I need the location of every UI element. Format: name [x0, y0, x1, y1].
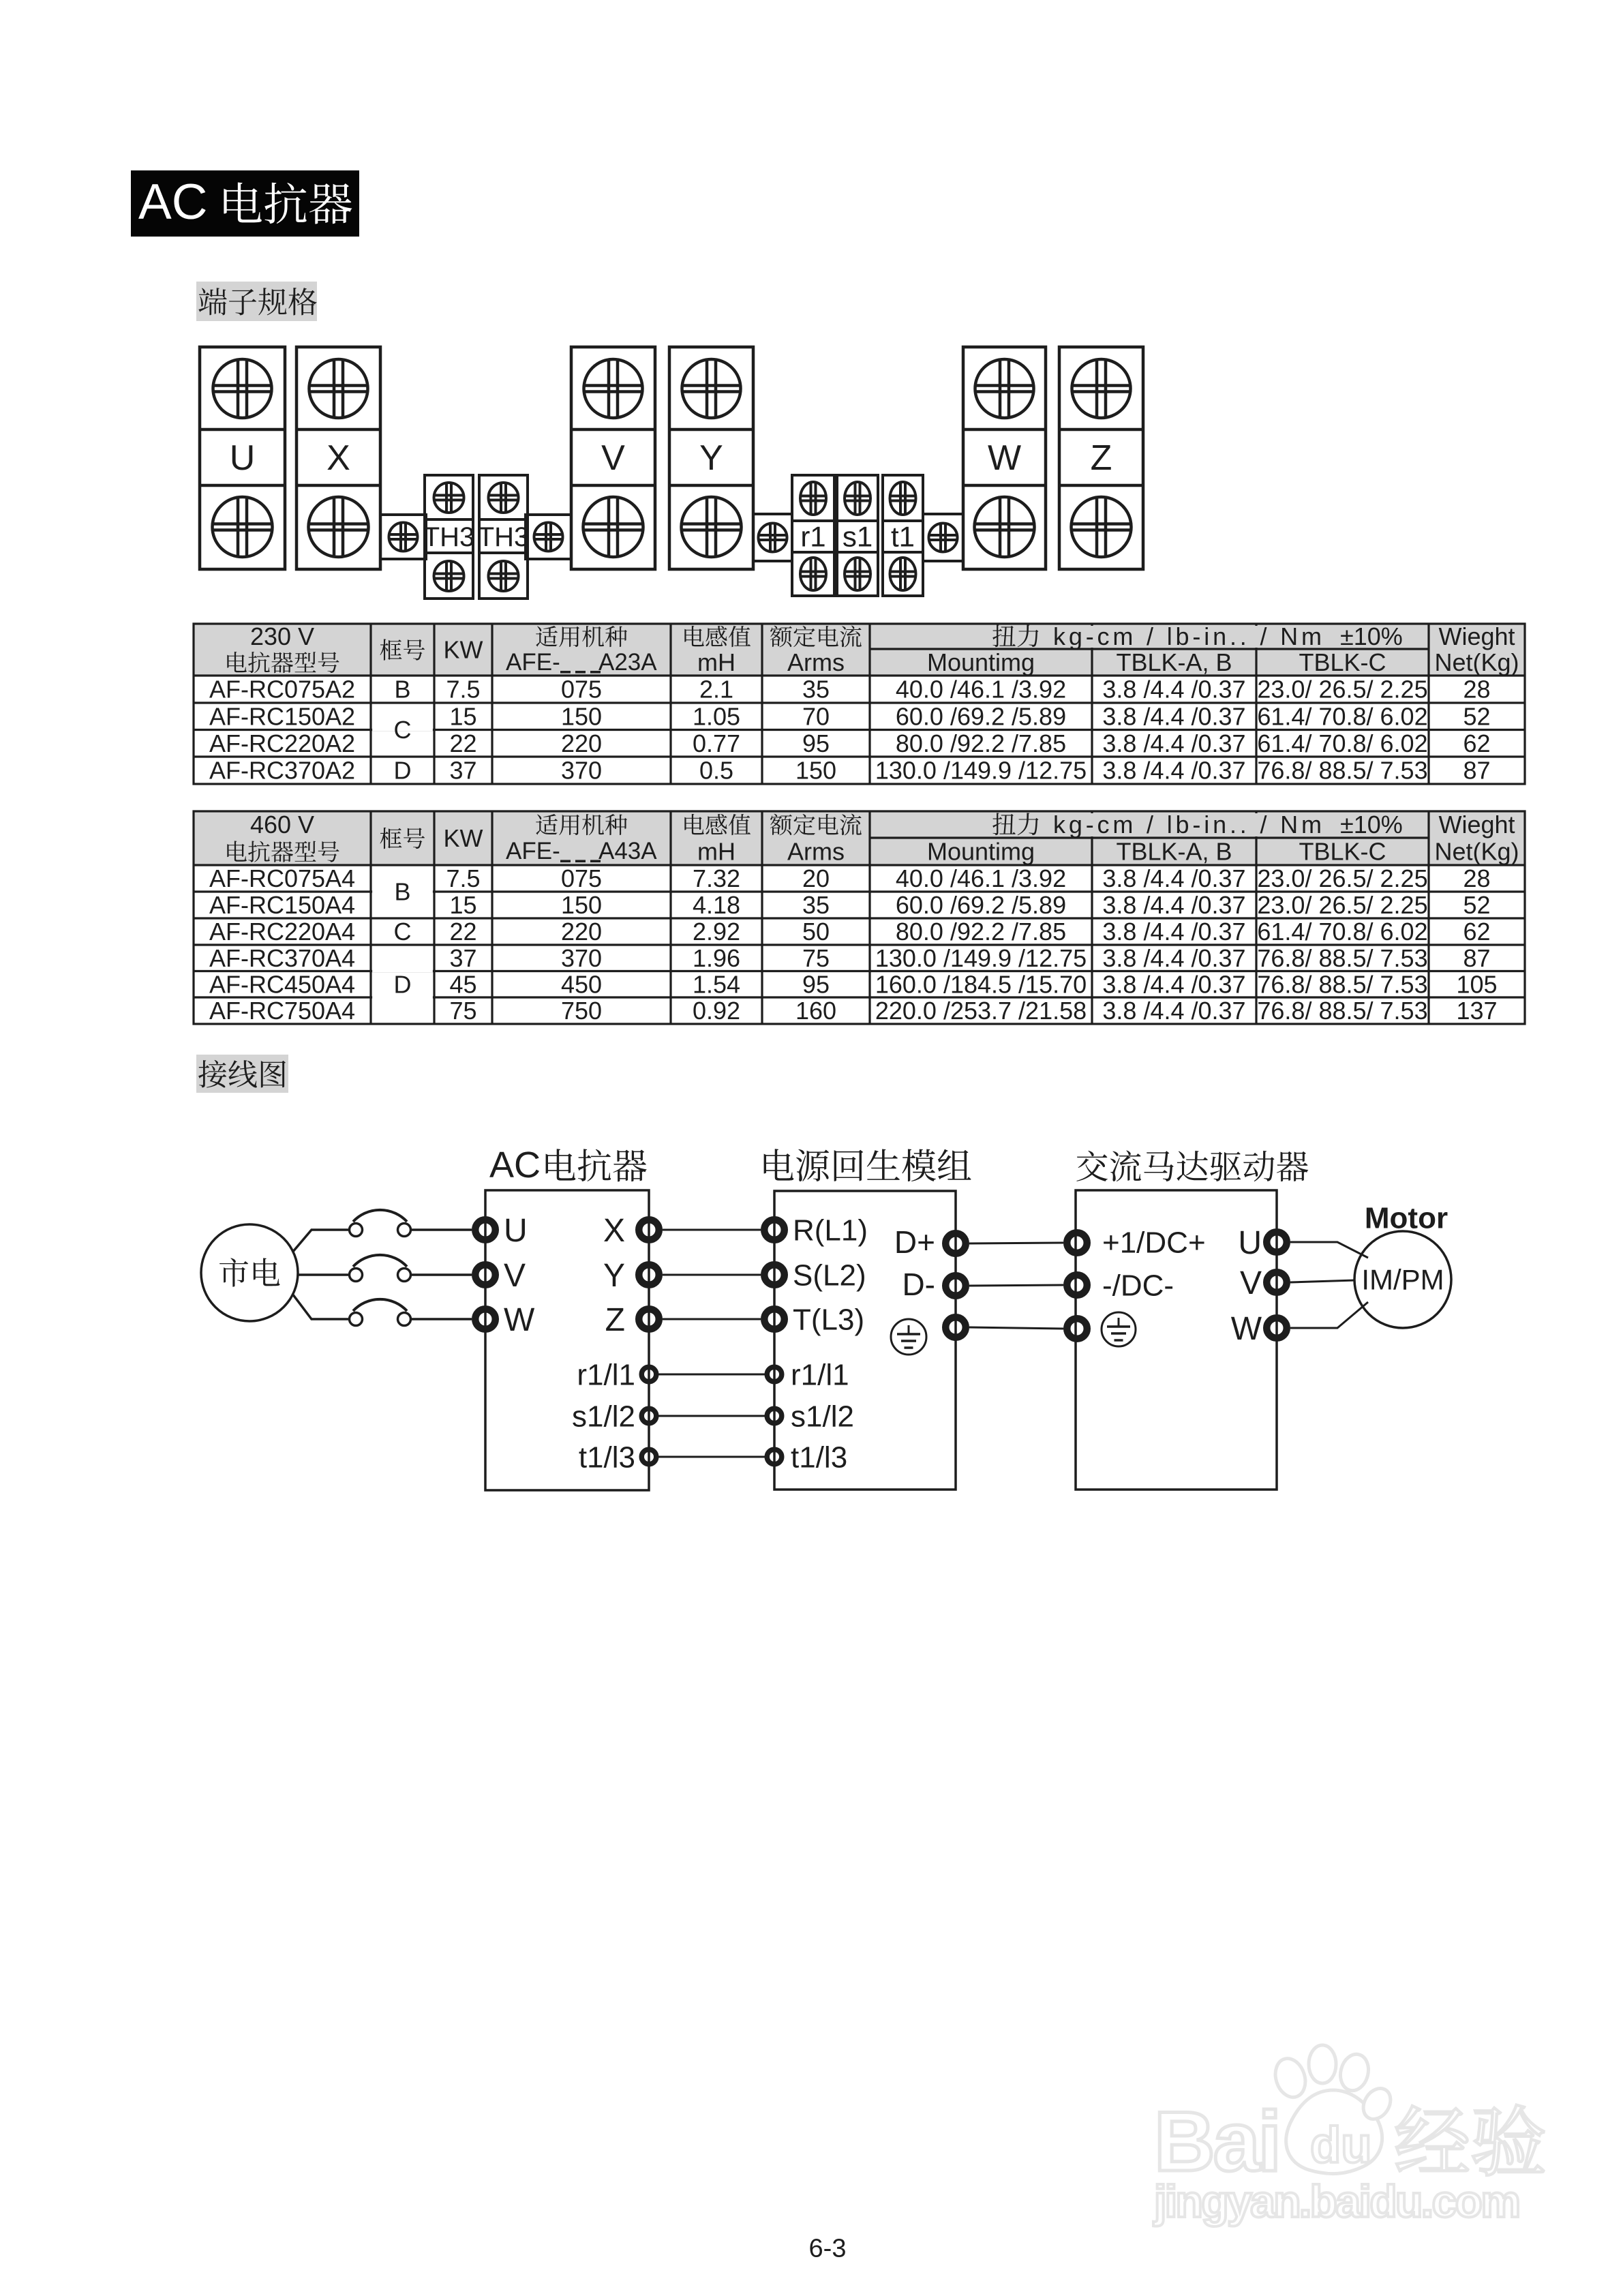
svg-text:160.0 /184.5 /15.70: 160.0 /184.5 /15.70	[875, 970, 1087, 998]
svg-text:76.8/ 88.5/ 7.53: 76.8/ 88.5/ 7.53	[1257, 944, 1427, 972]
svg-text:15: 15	[449, 702, 476, 730]
svg-text:52: 52	[1463, 891, 1490, 919]
svg-text:kg-cm / lb-in.. / Nm: kg-cm / lb-in.. / Nm	[1053, 811, 1322, 839]
svg-text:AF-RC750A4: AF-RC750A4	[209, 997, 355, 1025]
svg-text:60.0 /69.2 /5.89: 60.0 /69.2 /5.89	[896, 891, 1066, 919]
svg-text:4.18: 4.18	[693, 891, 740, 919]
svg-text:130.0 /149.9 /12.75: 130.0 /149.9 /12.75	[875, 944, 1087, 972]
svg-text:AF-RC370A4: AF-RC370A4	[209, 944, 355, 972]
svg-text:AF-RC075A4: AF-RC075A4	[209, 864, 355, 892]
svg-text:Mountimg: Mountimg	[927, 838, 1035, 866]
svg-text:s1/l2: s1/l2	[572, 1400, 635, 1433]
svg-text:15: 15	[449, 891, 476, 919]
svg-text:+1/DC+: +1/DC+	[1102, 1226, 1206, 1259]
svg-text:W: W	[988, 438, 1021, 478]
svg-text:28: 28	[1463, 864, 1490, 892]
svg-text:AF-RC150A4: AF-RC150A4	[209, 891, 355, 919]
svg-text:1.05: 1.05	[693, 702, 740, 730]
svg-text:IM/PM: IM/PM	[1361, 1264, 1444, 1296]
svg-text:S(L2): S(L2)	[793, 1258, 866, 1292]
svg-text:Mountimg: Mountimg	[927, 648, 1035, 676]
svg-text:150: 150	[795, 757, 836, 785]
svg-text:105: 105	[1456, 970, 1497, 998]
svg-text:V: V	[1240, 1265, 1262, 1301]
svg-text:95: 95	[802, 970, 830, 998]
svg-text:20: 20	[802, 864, 830, 892]
svg-text:230 V: 230 V	[250, 622, 314, 650]
svg-text:75: 75	[449, 997, 476, 1025]
svg-text:Arms: Arms	[787, 648, 845, 676]
svg-text:220: 220	[561, 918, 602, 946]
svg-text:r1/l1: r1/l1	[791, 1358, 849, 1391]
svg-text:7.5: 7.5	[446, 864, 480, 892]
svg-text:50: 50	[802, 918, 830, 946]
svg-text:75: 75	[802, 944, 830, 972]
svg-text:220.0 /253.7 /21.58: 220.0 /253.7 /21.58	[875, 997, 1087, 1025]
svg-text:40.0 /46.1 /3.92: 40.0 /46.1 /3.92	[896, 864, 1066, 892]
svg-text:370: 370	[561, 757, 602, 785]
svg-text:23.0/ 26.5/ 2.25: 23.0/ 26.5/ 2.25	[1257, 891, 1427, 919]
svg-text:AF-RC450A4: AF-RC450A4	[209, 970, 355, 998]
svg-text:AF-RC370A2: AF-RC370A2	[209, 757, 355, 785]
svg-text:130.0 /149.9 /12.75: 130.0 /149.9 /12.75	[875, 757, 1087, 785]
svg-text:95: 95	[802, 729, 830, 757]
svg-text:Arms: Arms	[787, 838, 845, 866]
svg-text:A43A: A43A	[598, 838, 657, 864]
svg-text:075: 075	[561, 864, 602, 892]
svg-text:D: D	[394, 971, 412, 999]
svg-text:70: 70	[802, 702, 830, 730]
svg-text:62: 62	[1463, 918, 1490, 946]
svg-text:Net(Kg): Net(Kg)	[1434, 838, 1519, 866]
svg-text:t1/l3: t1/l3	[579, 1440, 635, 1474]
svg-text:R(L1): R(L1)	[793, 1213, 868, 1247]
svg-text:±10%: ±10%	[1340, 622, 1403, 650]
svg-text:76.8/ 88.5/ 7.53: 76.8/ 88.5/ 7.53	[1257, 970, 1427, 998]
svg-text:Y: Y	[603, 1258, 625, 1294]
svg-text:TBLK-C: TBLK-C	[1299, 648, 1386, 676]
svg-text:U: U	[230, 438, 256, 478]
svg-text:AFE-: AFE-	[506, 838, 560, 864]
svg-text:t1/l3: t1/l3	[791, 1440, 847, 1474]
svg-text:X: X	[327, 438, 350, 478]
svg-text:7.5: 7.5	[446, 676, 480, 704]
svg-text:3.8 /4.4 /0.37: 3.8 /4.4 /0.37	[1102, 891, 1245, 919]
svg-text:TH3: TH3	[423, 522, 475, 552]
svg-text:61.4/ 70.8/ 6.02: 61.4/ 70.8/ 6.02	[1257, 702, 1427, 730]
svg-text:D-: D-	[902, 1267, 935, 1302]
svg-text:1.96: 1.96	[693, 944, 740, 972]
svg-text:3.8 /4.4 /0.37: 3.8 /4.4 /0.37	[1102, 970, 1245, 998]
svg-text:76.8/ 88.5/ 7.53: 76.8/ 88.5/ 7.53	[1257, 757, 1427, 785]
svg-text:075: 075	[561, 676, 602, 704]
svg-text:0.77: 0.77	[693, 729, 740, 757]
svg-text:23.0/ 26.5/ 2.25: 23.0/ 26.5/ 2.25	[1257, 864, 1427, 892]
svg-text:750: 750	[561, 997, 602, 1025]
svg-text:220: 220	[561, 729, 602, 757]
svg-text:V: V	[504, 1258, 526, 1294]
svg-text:45: 45	[449, 970, 476, 998]
svg-text:3.8 /4.4 /0.37: 3.8 /4.4 /0.37	[1102, 676, 1245, 704]
svg-text:W: W	[504, 1302, 535, 1338]
svg-text:du: du	[1310, 2117, 1371, 2173]
svg-text:23.0/ 26.5/ 2.25: 23.0/ 26.5/ 2.25	[1257, 676, 1427, 704]
svg-text:3.8 /4.4 /0.37: 3.8 /4.4 /0.37	[1102, 918, 1245, 946]
svg-text:U: U	[1238, 1225, 1262, 1261]
svg-text:±10%: ±10%	[1340, 811, 1403, 839]
svg-text:Net(Kg): Net(Kg)	[1434, 648, 1519, 676]
svg-text:2.1: 2.1	[699, 676, 733, 704]
svg-text:t1: t1	[891, 521, 915, 553]
svg-text:B: B	[394, 878, 410, 906]
svg-text:AF-RC220A4: AF-RC220A4	[209, 918, 355, 946]
svg-text:87: 87	[1463, 757, 1490, 785]
svg-text:6-3: 6-3	[809, 2234, 847, 2263]
svg-text:460 V: 460 V	[250, 811, 314, 839]
svg-text:80.0 /92.2 /7.85: 80.0 /92.2 /7.85	[896, 918, 1066, 946]
svg-text:TBLK-A, B: TBLK-A, B	[1116, 648, 1232, 676]
svg-text:52: 52	[1463, 702, 1490, 730]
svg-text:X: X	[603, 1213, 625, 1249]
svg-text:r1/l1: r1/l1	[577, 1358, 635, 1391]
svg-text:0.5: 0.5	[699, 757, 733, 785]
svg-text:KW: KW	[444, 824, 483, 852]
svg-text:1.54: 1.54	[693, 970, 740, 998]
svg-text:Z: Z	[1091, 438, 1112, 478]
svg-text:Motor: Motor	[1365, 1201, 1448, 1235]
svg-text:A23A: A23A	[598, 649, 657, 676]
svg-text:T(L3): T(L3)	[793, 1303, 864, 1336]
svg-text:160: 160	[795, 997, 836, 1025]
svg-text:22: 22	[449, 918, 476, 946]
svg-text:62: 62	[1463, 729, 1490, 757]
svg-text:KW: KW	[444, 636, 483, 664]
svg-text:mH: mH	[697, 838, 735, 866]
svg-text:AF-RC150A2: AF-RC150A2	[209, 702, 355, 730]
svg-text:jingyan.baidu.com: jingyan.baidu.com	[1153, 2176, 1521, 2226]
svg-text:AFE-: AFE-	[506, 649, 560, 676]
svg-text:3.8 /4.4 /0.37: 3.8 /4.4 /0.37	[1102, 729, 1245, 757]
svg-text:7.32: 7.32	[693, 864, 740, 892]
svg-text:150: 150	[561, 891, 602, 919]
svg-text:mH: mH	[697, 648, 735, 676]
svg-text:D+: D+	[894, 1224, 935, 1260]
svg-text:37: 37	[449, 944, 476, 972]
svg-text:Bai: Bai	[1154, 2095, 1281, 2189]
svg-text:AC: AC	[489, 1145, 541, 1185]
svg-text:3.8 /4.4 /0.37: 3.8 /4.4 /0.37	[1102, 702, 1245, 730]
svg-text:Wieght: Wieght	[1438, 622, 1515, 650]
svg-text:Z: Z	[605, 1302, 625, 1338]
svg-text:TBLK-C: TBLK-C	[1299, 838, 1386, 866]
svg-text:-/DC-: -/DC-	[1102, 1269, 1174, 1302]
svg-text:150: 150	[561, 702, 602, 730]
svg-text:87: 87	[1463, 944, 1490, 972]
svg-text:TBLK-A, B: TBLK-A, B	[1116, 838, 1232, 866]
svg-text:W: W	[1231, 1311, 1262, 1347]
svg-text:D: D	[394, 757, 412, 785]
svg-text:35: 35	[802, 891, 830, 919]
svg-text:3.8 /4.4 /0.37: 3.8 /4.4 /0.37	[1102, 864, 1245, 892]
svg-text:s1: s1	[843, 521, 873, 553]
svg-text:61.4/ 70.8/ 6.02: 61.4/ 70.8/ 6.02	[1257, 918, 1427, 946]
svg-text:B: B	[394, 676, 410, 704]
svg-text:Y: Y	[699, 438, 723, 478]
svg-text:C: C	[394, 716, 412, 744]
svg-text:3.8 /4.4 /0.37: 3.8 /4.4 /0.37	[1102, 997, 1245, 1025]
svg-text:AC: AC	[138, 175, 207, 230]
svg-text:80.0 /92.2 /7.85: 80.0 /92.2 /7.85	[896, 729, 1066, 757]
svg-text:35: 35	[802, 676, 830, 704]
svg-text:3.8 /4.4 /0.37: 3.8 /4.4 /0.37	[1102, 757, 1245, 785]
svg-text:76.8/ 88.5/ 7.53: 76.8/ 88.5/ 7.53	[1257, 997, 1427, 1025]
svg-text:3.8 /4.4 /0.37: 3.8 /4.4 /0.37	[1102, 944, 1245, 972]
svg-text:450: 450	[561, 970, 602, 998]
svg-text:40.0 /46.1 /3.92: 40.0 /46.1 /3.92	[896, 676, 1066, 704]
svg-text:60.0 /69.2 /5.89: 60.0 /69.2 /5.89	[896, 702, 1066, 730]
svg-text:s1/l2: s1/l2	[791, 1400, 854, 1433]
svg-text:137: 137	[1456, 997, 1497, 1025]
svg-text:C: C	[394, 918, 412, 946]
svg-text:AF-RC075A2: AF-RC075A2	[209, 676, 355, 704]
svg-text:Wieght: Wieght	[1438, 811, 1515, 839]
svg-text:U: U	[504, 1213, 528, 1249]
svg-text:2.92: 2.92	[693, 918, 740, 946]
svg-text:0.92: 0.92	[693, 997, 740, 1025]
svg-text:TH3: TH3	[478, 522, 530, 552]
svg-text:kg-cm / lb-in.. / Nm: kg-cm / lb-in.. / Nm	[1053, 622, 1322, 650]
svg-text:22: 22	[449, 729, 476, 757]
svg-text:28: 28	[1463, 676, 1490, 704]
svg-text:r1: r1	[800, 521, 825, 553]
svg-text:61.4/ 70.8/ 6.02: 61.4/ 70.8/ 6.02	[1257, 729, 1427, 757]
svg-text:370: 370	[561, 944, 602, 972]
svg-text:V: V	[601, 438, 625, 478]
svg-text:AF-RC220A2: AF-RC220A2	[209, 729, 355, 757]
svg-text:37: 37	[449, 757, 476, 785]
